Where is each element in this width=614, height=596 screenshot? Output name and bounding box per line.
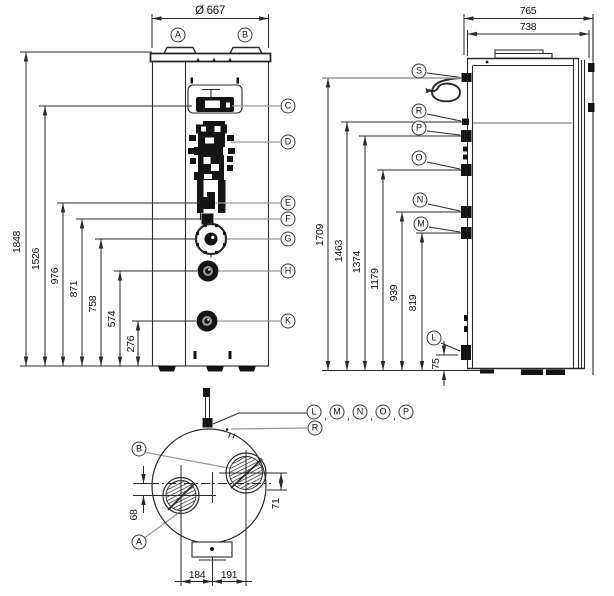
- round-port-h: [198, 261, 219, 282]
- dim-depth-765: 765: [520, 5, 537, 17]
- dim-height-1848: 1848: [11, 231, 23, 253]
- callout-group-n: N: [353, 405, 368, 420]
- callout-separator: ,: [324, 412, 327, 423]
- dim-height-1179: 1179: [369, 268, 381, 289]
- side-view-dimensions: [322, 14, 593, 386]
- callout-separator: ,: [393, 412, 396, 423]
- callout-c: C: [281, 99, 296, 114]
- dim-spacing-191: 191: [221, 569, 238, 581]
- callout-b: B: [238, 28, 253, 43]
- callout-r: R: [412, 104, 427, 119]
- side-view: [426, 14, 595, 375]
- dim-height-574: 574: [106, 311, 118, 328]
- round-port-k: [197, 311, 218, 332]
- dim-height-871: 871: [68, 281, 80, 298]
- front-view: [151, 48, 271, 372]
- callout-p: P: [412, 121, 427, 136]
- callout-group-o: O: [376, 405, 391, 420]
- callout-group-l: L: [307, 405, 322, 420]
- callout-a: A: [171, 28, 186, 43]
- dim-depth-738: 738: [520, 21, 537, 33]
- dim-height-1463: 1463: [333, 240, 345, 262]
- callout-o: O: [412, 151, 427, 166]
- callout-rear-r: R: [308, 421, 323, 436]
- callout-port-a: A: [132, 535, 147, 550]
- callout-separator: ,: [370, 412, 373, 423]
- dim-height-1709: 1709: [314, 224, 326, 246]
- callout-n: N: [413, 193, 428, 208]
- dim-height-976: 976: [49, 268, 61, 285]
- callout-m: M: [414, 217, 429, 232]
- dim-height-276: 276: [125, 336, 137, 353]
- top-view: [133, 388, 307, 586]
- drain-hose-coil: [429, 78, 462, 101]
- callout-separator: ,: [347, 412, 350, 423]
- callout-group-m: M: [330, 405, 345, 420]
- technical-drawing-page: Ø 667 1848 1526 976 871 758 574 276 A B …: [0, 0, 614, 596]
- callout-d: D: [281, 135, 296, 150]
- dim-height-939: 939: [388, 285, 400, 302]
- dim-spacing-184: 184: [189, 569, 206, 581]
- callout-port-b: B: [132, 442, 147, 457]
- dim-height-1526: 1526: [30, 248, 42, 270]
- dim-height-1374: 1374: [351, 251, 363, 273]
- callout-k: K: [281, 314, 296, 329]
- dim-diameter: Ø 667: [195, 5, 225, 17]
- callout-f: F: [281, 212, 296, 227]
- dim-height-758: 758: [87, 296, 99, 313]
- callout-e: E: [281, 196, 296, 211]
- callout-group-p: P: [399, 405, 414, 420]
- dim-base-75: 75: [430, 358, 442, 369]
- side-ports: [461, 63, 595, 375]
- dim-offset-68: 68: [128, 509, 140, 520]
- callout-g: G: [281, 232, 296, 247]
- callout-l: L: [427, 331, 442, 346]
- dim-height-819: 819: [407, 295, 419, 312]
- callout-s: S: [412, 64, 427, 79]
- callout-h: H: [281, 264, 296, 279]
- dim-offset-71: 71: [270, 498, 282, 509]
